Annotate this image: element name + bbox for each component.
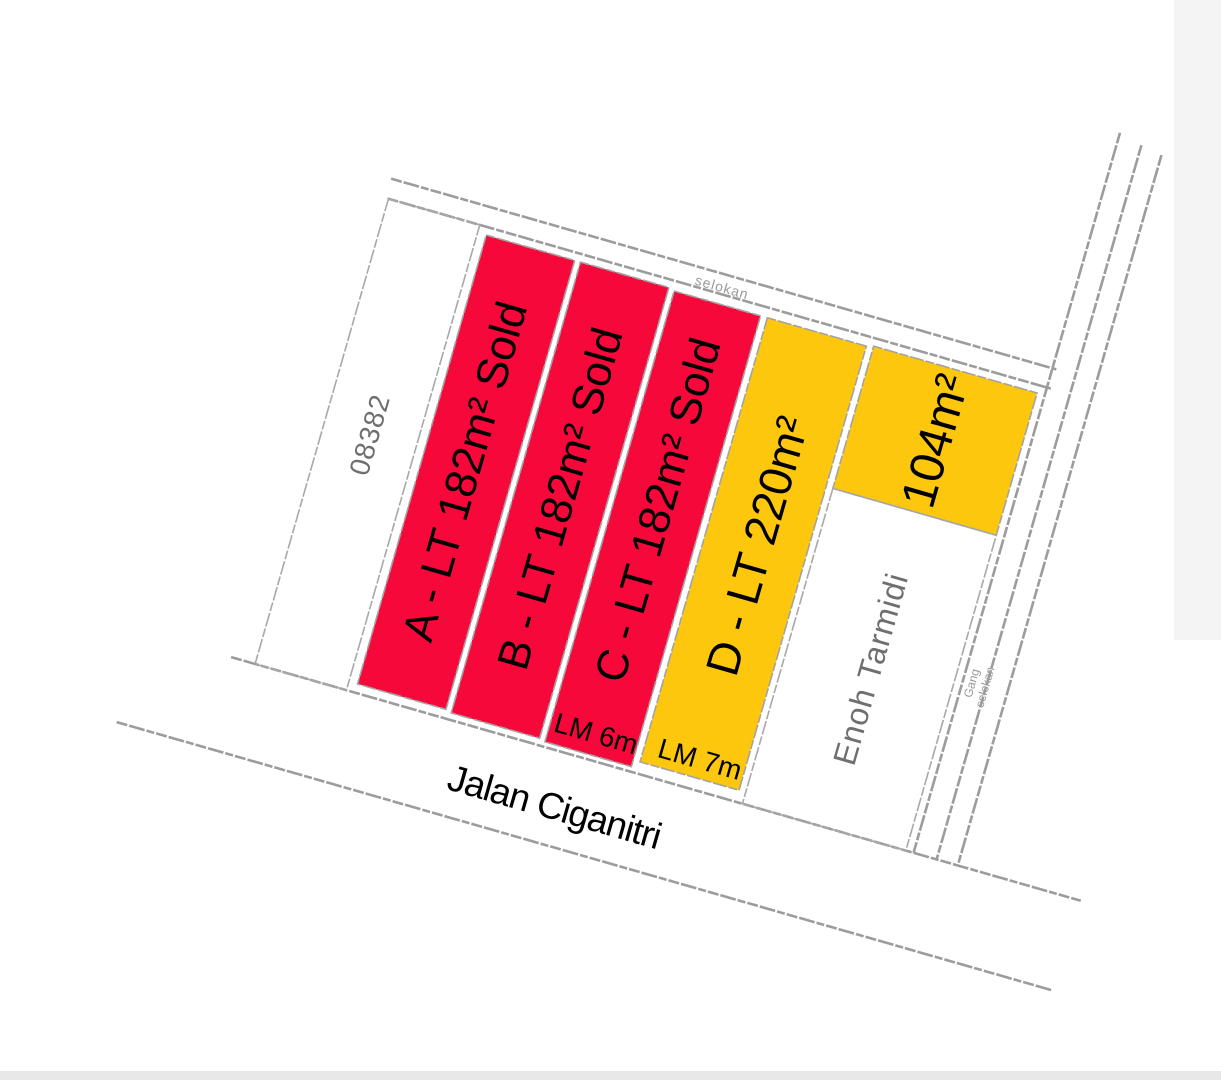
plot-neighbor-label: Enoh Tarmidi <box>826 569 915 769</box>
rotated-plan-group: selokan Gang selokan Jalan Ciganitri 083… <box>117 0 1221 991</box>
main-road-bottom-edge <box>117 722 1051 990</box>
scan-edge-right <box>1174 0 1221 640</box>
site-plan-page: selokan Gang selokan Jalan Ciganitri 083… <box>0 0 1221 1080</box>
scan-edge-bottom <box>0 1071 1221 1080</box>
plot-reference-label: 08382 <box>343 391 396 479</box>
top-boundary-label: selokan <box>693 272 751 303</box>
site-plan-map: selokan Gang selokan Jalan Ciganitri 083… <box>0 0 1221 1080</box>
main-road-top-edge <box>231 657 1081 901</box>
